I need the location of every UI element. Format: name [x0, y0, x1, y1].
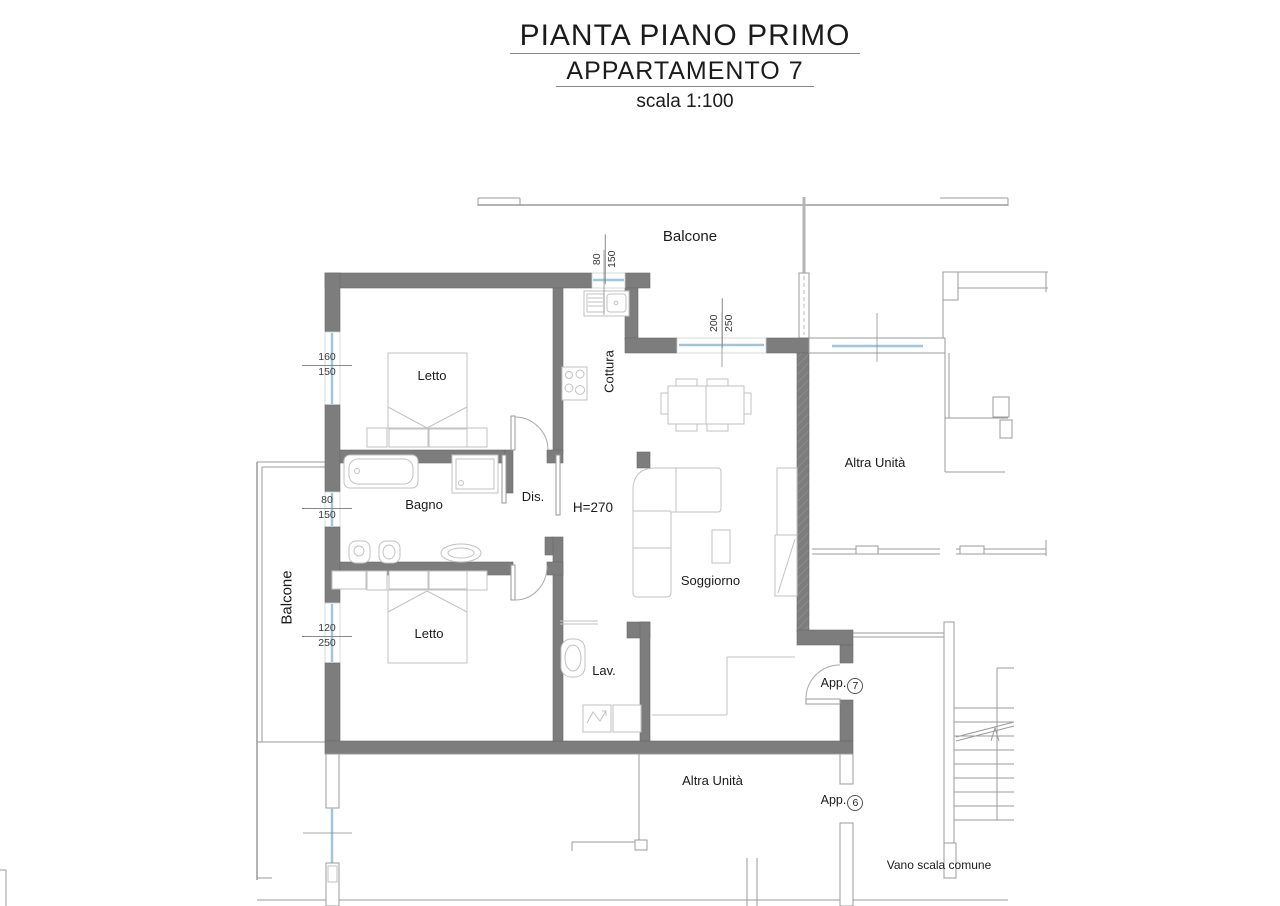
wall-segment: [325, 527, 340, 603]
label-other-unit-right: Altra Unità: [830, 455, 920, 470]
wall-pillar: [637, 452, 650, 468]
neighbor-fixture: [856, 546, 878, 554]
label-balcony-top: Balcone: [655, 228, 725, 245]
coffee-table: [712, 530, 730, 563]
title-block: PIANTA PIANO PRIMO APPARTAMENTO 7 scala …: [385, 20, 985, 113]
dim-width: 120: [302, 623, 352, 635]
label-bedroom-1: Letto: [402, 368, 462, 383]
appliance: [613, 705, 641, 732]
dimension-window-soggiorno: 200 250: [709, 298, 736, 348]
dim-width: 200: [709, 298, 721, 348]
party-wall: [797, 353, 809, 632]
chair: [676, 379, 697, 386]
chair: [744, 393, 751, 414]
dimension-window-letto2: 120 250: [302, 623, 352, 650]
label-laundry: Lav.: [584, 663, 624, 678]
door-arc: [515, 417, 548, 450]
toilet: [379, 541, 400, 563]
door-leaf: [502, 455, 506, 503]
wall-segment: [797, 630, 853, 645]
nightstand: [367, 428, 387, 447]
wall-segment: [766, 338, 809, 353]
wall-segment: [325, 663, 340, 741]
neighbor-fixture: [1000, 420, 1012, 438]
neighbor-fixture: [993, 397, 1009, 417]
entrance-prefix: App.: [821, 676, 847, 690]
washbasin: [441, 544, 481, 562]
dim-width: 80: [302, 495, 352, 507]
label-balcony-left: Balcone: [279, 558, 296, 638]
chair: [707, 424, 728, 431]
label-ceiling-height: H=270: [564, 500, 622, 515]
door-arc: [515, 566, 547, 600]
label-kitchen: Cottura: [602, 347, 617, 397]
wall-segment: [545, 537, 553, 555]
dim-width: 80: [592, 234, 604, 284]
wall-segment: [625, 273, 650, 288]
wall-segment: [625, 338, 677, 353]
thin-wall: [326, 754, 339, 808]
nightstand: [467, 428, 487, 447]
door-leaf: [511, 565, 515, 600]
dresser: [332, 571, 366, 589]
stairwell-wall: [944, 622, 954, 843]
bed-bench: [429, 429, 467, 447]
wall-segment: [325, 405, 340, 492]
entrance-prefix: App.: [821, 793, 847, 807]
wall-segment: [325, 741, 853, 754]
dim-height: 150: [302, 510, 352, 522]
page-title: PIANTA PIANO PRIMO: [385, 20, 985, 54]
stairs-direction-line: [956, 726, 1014, 741]
shower-tray: [452, 455, 498, 493]
wall-segment: [547, 450, 563, 463]
door-leaf: [511, 416, 515, 450]
tv-cabinet: [777, 468, 797, 535]
dim-height: 250: [302, 638, 352, 650]
floor-plan-drawing: [0, 0, 1280, 906]
neighbor-fixture: [635, 840, 647, 850]
thin-wall: [840, 823, 853, 906]
washing-machine: [583, 705, 611, 732]
label-living-room: Soggiorno: [668, 573, 753, 588]
wall-segment: [840, 700, 853, 741]
chair: [661, 393, 668, 414]
door-leaf: [556, 455, 560, 515]
label-bathroom: Bagno: [394, 497, 454, 512]
floor-plan-sheet: PIANTA PIANO PRIMO APPARTAMENTO 7 scala …: [0, 0, 1280, 906]
bed-bench: [429, 571, 467, 589]
dim-height: 150: [607, 234, 619, 284]
dimension-window-cottura: 80 150: [592, 234, 619, 284]
dim-width: 160: [302, 352, 352, 364]
scale-note: scala 1:100: [385, 91, 985, 113]
dim-height: 250: [724, 298, 736, 348]
wall-segment: [325, 273, 592, 288]
wall-segment: [325, 273, 340, 332]
neighbor-fixture: [960, 546, 984, 554]
thin-wall-pilaster: [328, 866, 337, 882]
bidet: [349, 541, 370, 563]
dimension-window-bagno: 80 150: [302, 495, 352, 522]
nightstand: [367, 571, 387, 590]
wall-segment: [840, 645, 853, 663]
chair: [707, 379, 728, 386]
label-entrance-app6: App.6: [812, 793, 872, 811]
bed-bench: [389, 571, 428, 589]
thin-wall-pilaster: [943, 272, 958, 300]
bed-bench: [389, 429, 428, 447]
label-stairwell: Vano scala comune: [884, 858, 994, 872]
bed: [388, 353, 467, 428]
label-entrance-app7: App.7: [812, 676, 872, 694]
page-subtitle: APPARTAMENTO 7: [385, 57, 985, 88]
chair: [676, 424, 697, 431]
dim-height: 150: [302, 367, 352, 379]
nightstand: [467, 571, 487, 590]
entrance-number-circle: 6: [847, 795, 863, 811]
wall-segment: [547, 562, 563, 575]
dimension-window-letto1: 160 150: [302, 352, 352, 379]
label-other-unit-bottom: Altra Unità: [660, 773, 765, 788]
door-leaf: [806, 699, 840, 704]
label-hallway: Dis.: [513, 489, 553, 504]
label-bedroom-2: Letto: [399, 626, 459, 641]
stairs-direction-line: [956, 722, 1014, 737]
entrance-number-circle: 7: [847, 678, 863, 694]
thin-wall: [840, 754, 853, 784]
